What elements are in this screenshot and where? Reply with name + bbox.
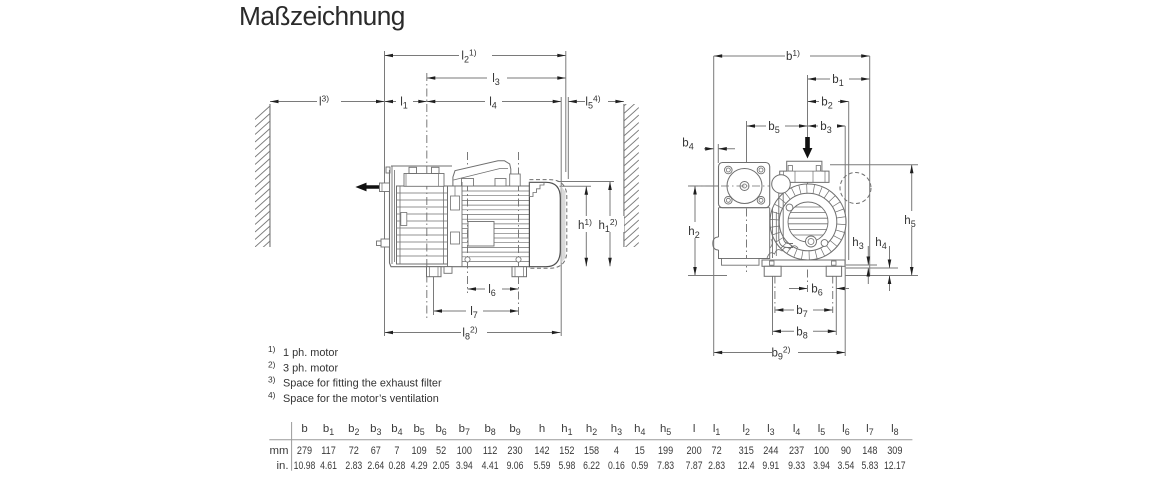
svg-text:1 ph. motor: 1 ph. motor bbox=[283, 347, 338, 359]
svg-text:72: 72 bbox=[712, 445, 722, 457]
svg-text:112: 112 bbox=[483, 445, 498, 457]
svg-text:158: 158 bbox=[584, 445, 599, 457]
svg-text:1): 1) bbox=[268, 344, 276, 354]
svg-text:3 ph. motor: 3 ph. motor bbox=[283, 362, 338, 374]
svg-text:9.33: 9.33 bbox=[788, 460, 805, 472]
svg-text:72: 72 bbox=[349, 445, 359, 457]
svg-text:3.94: 3.94 bbox=[813, 460, 830, 472]
svg-text:3.54: 3.54 bbox=[837, 460, 854, 472]
svg-text:7.83: 7.83 bbox=[657, 460, 674, 472]
svg-text:5.83: 5.83 bbox=[861, 460, 878, 472]
svg-text:2.83: 2.83 bbox=[345, 460, 362, 472]
svg-text:2.83: 2.83 bbox=[708, 460, 725, 472]
svg-text:Maßzeichnung: Maßzeichnung bbox=[239, 1, 405, 31]
svg-text:52: 52 bbox=[436, 445, 446, 457]
svg-text:2): 2) bbox=[268, 359, 276, 369]
svg-text:309: 309 bbox=[887, 445, 902, 457]
svg-text:3.94: 3.94 bbox=[456, 460, 473, 472]
svg-text:5.98: 5.98 bbox=[558, 460, 575, 472]
svg-text:l: l bbox=[693, 423, 696, 435]
svg-text:10.98: 10.98 bbox=[294, 460, 316, 472]
svg-text:315: 315 bbox=[739, 445, 754, 457]
svg-text:Space for fitting the exhaust: Space for fitting the exhaust filter bbox=[283, 378, 442, 390]
svg-text:230: 230 bbox=[507, 445, 522, 457]
svg-text:2.05: 2.05 bbox=[433, 460, 450, 472]
svg-text:148: 148 bbox=[862, 445, 877, 457]
svg-text:90: 90 bbox=[841, 445, 851, 457]
svg-text:7: 7 bbox=[394, 445, 399, 457]
svg-text:7.87: 7.87 bbox=[686, 460, 703, 472]
svg-text:0.28: 0.28 bbox=[388, 460, 405, 472]
svg-text:152: 152 bbox=[559, 445, 574, 457]
svg-text:4.41: 4.41 bbox=[482, 460, 499, 472]
svg-text:279: 279 bbox=[297, 445, 312, 457]
svg-text:in.: in. bbox=[276, 460, 288, 472]
svg-text:4.61: 4.61 bbox=[320, 460, 337, 472]
svg-text:4): 4) bbox=[268, 390, 276, 400]
svg-text:200: 200 bbox=[686, 445, 701, 457]
svg-text:199: 199 bbox=[658, 445, 673, 457]
svg-text:15: 15 bbox=[635, 445, 645, 457]
svg-text:2.64: 2.64 bbox=[367, 460, 384, 472]
svg-text:h: h bbox=[539, 423, 545, 435]
svg-text:3): 3) bbox=[268, 375, 276, 385]
svg-text:6.22: 6.22 bbox=[583, 460, 600, 472]
svg-text:12.4: 12.4 bbox=[738, 460, 755, 472]
svg-text:9.91: 9.91 bbox=[762, 460, 779, 472]
svg-text:237: 237 bbox=[789, 445, 804, 457]
svg-text:4.29: 4.29 bbox=[411, 460, 428, 472]
svg-text:b: b bbox=[301, 423, 307, 435]
svg-text:0.59: 0.59 bbox=[631, 460, 648, 472]
svg-text:100: 100 bbox=[814, 445, 829, 457]
svg-text:117: 117 bbox=[321, 445, 336, 457]
svg-text:0.16: 0.16 bbox=[608, 460, 625, 472]
svg-text:244: 244 bbox=[763, 445, 778, 457]
svg-text:100: 100 bbox=[457, 445, 472, 457]
svg-text:9.06: 9.06 bbox=[507, 460, 524, 472]
svg-text:109: 109 bbox=[411, 445, 426, 457]
svg-text:mm: mm bbox=[270, 445, 289, 457]
svg-text:67: 67 bbox=[371, 445, 381, 457]
svg-text:142: 142 bbox=[534, 445, 549, 457]
svg-text:Space for the motor’s ventilat: Space for the motor’s ventilation bbox=[283, 393, 439, 405]
svg-text:5.59: 5.59 bbox=[534, 460, 551, 472]
svg-text:4: 4 bbox=[614, 445, 619, 457]
svg-text:12.17: 12.17 bbox=[884, 460, 906, 472]
